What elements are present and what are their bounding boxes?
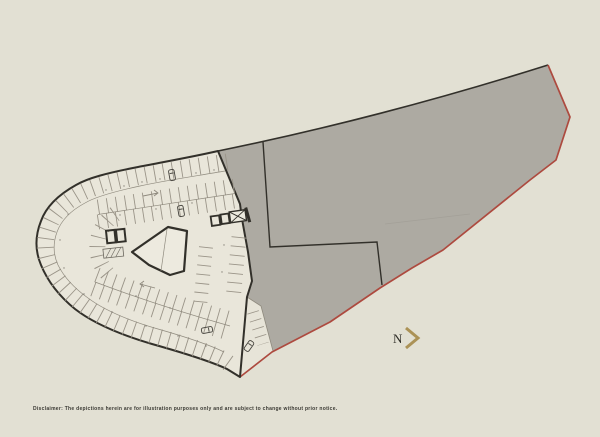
north-chevron-icon (403, 326, 421, 350)
north-label: N (393, 332, 402, 345)
site-plan-drawing (0, 0, 600, 437)
disclaimer-text: Disclaimer: The depictions herein are fo… (33, 406, 593, 412)
north-indicator: N (393, 326, 427, 350)
site-plan-page: N Disclaimer: The depictions herein are … (0, 0, 600, 437)
